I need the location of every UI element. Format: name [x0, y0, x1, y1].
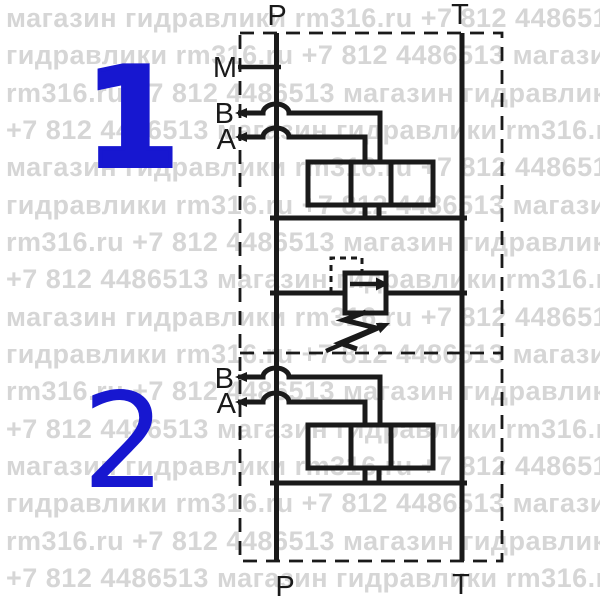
- label-a2-port: A: [217, 388, 237, 420]
- valve-1-position-box-left: [308, 162, 351, 205]
- valve-2-position-box-middle: [351, 425, 391, 468]
- adjust-arrow-icon: [376, 318, 392, 333]
- valve-1-position-box-middle: [351, 162, 391, 205]
- directional-valve-section-1: [308, 162, 433, 218]
- label-m-port: M: [213, 52, 237, 84]
- label-t-top: T: [451, 0, 469, 31]
- relief-valve: [270, 258, 467, 351]
- label-p-top: P: [267, 0, 286, 32]
- section-2-port-a-line: [238, 393, 365, 425]
- valve-1-position-box-right: [391, 162, 433, 205]
- section-1-port-b-line: [238, 104, 380, 162]
- label-p-bottom: P: [275, 571, 294, 600]
- section-2-port-b-line: [238, 368, 380, 425]
- hydraulic-schematic: P T P T M B A B A: [0, 0, 600, 600]
- section-1-port-a-line: [238, 128, 365, 162]
- directional-valve-section-2: [308, 425, 433, 483]
- relief-valve-box: [345, 273, 386, 313]
- valve-2-position-box-left: [308, 425, 351, 468]
- label-a1-port: A: [217, 124, 237, 156]
- schematic-page: магазин гидравлики rm316.ru +7 812 44865…: [0, 0, 600, 600]
- valve-2-position-box-right: [391, 425, 433, 468]
- label-t-bottom: T: [452, 569, 470, 600]
